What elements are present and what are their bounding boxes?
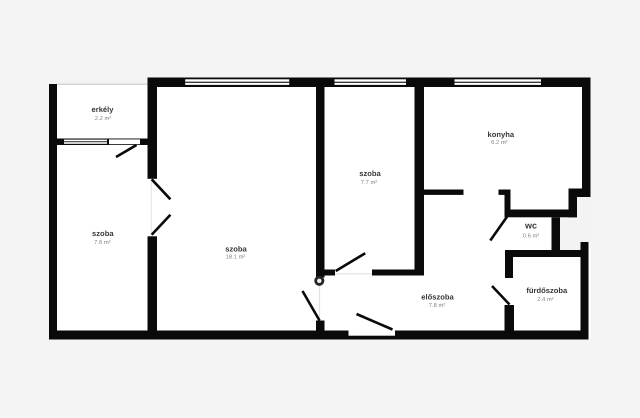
svg-text:szoba: szoba [359, 169, 381, 178]
svg-text:erkély: erkély [92, 105, 115, 114]
svg-text:7.7 m²: 7.7 m² [361, 179, 377, 186]
svg-text:2.4 m²: 2.4 m² [537, 296, 553, 303]
svg-text:6.2 m²: 6.2 m² [491, 139, 507, 146]
svg-text:0.6 m²: 0.6 m² [523, 233, 539, 240]
svg-text:2.2 m²: 2.2 m² [95, 115, 111, 122]
svg-text:7.6 m²: 7.6 m² [94, 239, 110, 246]
svg-text:előszoba: előszoba [421, 293, 454, 302]
svg-text:szoba: szoba [92, 229, 114, 238]
svg-text:konyha: konyha [488, 130, 515, 139]
svg-text:wc: wc [524, 220, 537, 230]
svg-text:18.1 m²: 18.1 m² [226, 253, 246, 260]
svg-text:szoba: szoba [225, 244, 247, 253]
svg-text:fürdőszoba: fürdőszoba [526, 286, 568, 295]
svg-text:7.8 m²: 7.8 m² [429, 302, 445, 309]
